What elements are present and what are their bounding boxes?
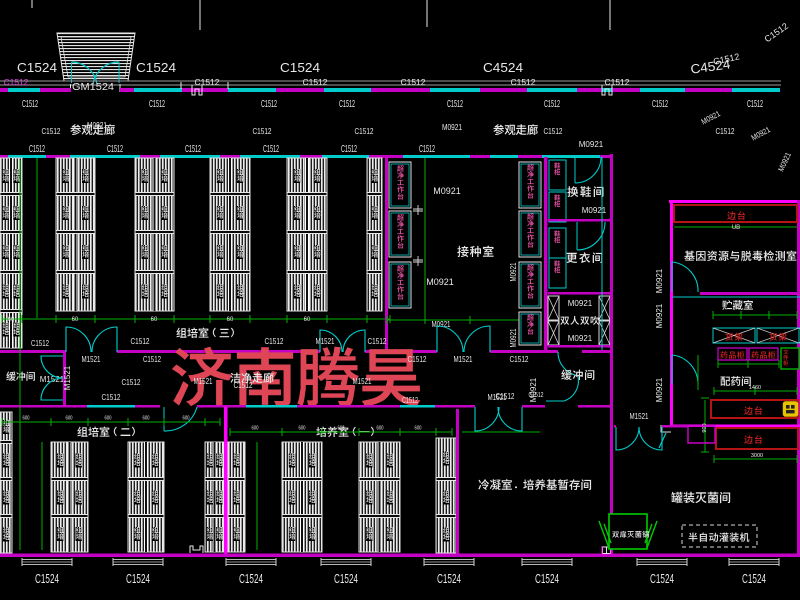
svg-text:600: 600 <box>183 416 190 422</box>
svg-text:M1521: M1521 <box>82 355 101 364</box>
svg-text:C1512: C1512 <box>261 98 277 110</box>
svg-text:C1512: C1512 <box>29 143 45 155</box>
svg-text:600: 600 <box>338 426 345 432</box>
svg-text:C1524: C1524 <box>334 571 358 586</box>
svg-text:C1512: C1512 <box>544 98 560 110</box>
svg-text:C4524: C4524 <box>483 60 523 75</box>
svg-text:UB: UB <box>732 225 740 231</box>
svg-text:600: 600 <box>105 416 112 422</box>
svg-text:C1512: C1512 <box>652 98 668 110</box>
svg-text:C1512: C1512 <box>122 378 141 387</box>
svg-text:600: 600 <box>143 416 150 422</box>
svg-text:C1524: C1524 <box>17 60 57 75</box>
svg-text:60: 60 <box>8 317 15 323</box>
svg-text:M0921: M0921 <box>655 303 664 328</box>
svg-text:M0921: M0921 <box>655 268 664 293</box>
svg-text:M1521: M1521 <box>63 365 72 390</box>
svg-text:M1521: M1521 <box>353 377 372 386</box>
svg-text:M1521: M1521 <box>316 337 335 346</box>
svg-text:C1512: C1512 <box>194 77 219 87</box>
svg-text:C1512: C1512 <box>42 126 61 136</box>
svg-text:C1512: C1512 <box>149 98 165 110</box>
svg-text:M0921: M0921 <box>655 377 664 402</box>
svg-text:C1512: C1512 <box>604 77 629 87</box>
svg-text:M0921: M0921 <box>509 328 518 347</box>
svg-text:C1512: C1512 <box>102 393 121 402</box>
svg-text:C1512: C1512 <box>355 126 374 136</box>
svg-text:C1512: C1512 <box>302 77 327 87</box>
svg-text:C1512: C1512 <box>544 126 563 136</box>
svg-text:C1512: C1512 <box>339 98 355 110</box>
svg-text:C1512: C1512 <box>265 337 284 346</box>
svg-text:900: 900 <box>702 423 708 432</box>
svg-text:C1512: C1512 <box>747 98 763 110</box>
svg-text:C1524: C1524 <box>35 571 59 586</box>
svg-text:M0921: M0921 <box>509 262 518 281</box>
svg-text:600: 600 <box>299 426 306 432</box>
svg-text:C1512: C1512 <box>3 77 28 87</box>
svg-text:600: 600 <box>377 426 384 432</box>
svg-text:M1521: M1521 <box>454 355 473 364</box>
svg-text:C1512: C1512 <box>253 126 272 136</box>
svg-text:C1512: C1512 <box>263 143 279 155</box>
svg-text:C1512: C1512 <box>510 355 529 364</box>
svg-text:60: 60 <box>227 317 234 323</box>
svg-text:C1512: C1512 <box>22 98 38 110</box>
svg-text:C1512: C1512 <box>143 355 161 364</box>
svg-text:C1524: C1524 <box>535 571 559 586</box>
svg-text:C1512: C1512 <box>529 390 544 399</box>
svg-text:C1524: C1524 <box>742 571 766 586</box>
svg-text:C1524: C1524 <box>650 571 674 586</box>
svg-text:M1521: M1521 <box>40 375 65 384</box>
svg-text:M0921: M0921 <box>442 122 462 132</box>
svg-text:C1512: C1512 <box>716 126 735 136</box>
svg-text:C1512: C1512 <box>400 77 425 87</box>
svg-text:60: 60 <box>304 317 311 323</box>
svg-text:C1524: C1524 <box>280 60 320 75</box>
svg-text:60: 60 <box>151 317 158 323</box>
svg-text:M0921: M0921 <box>568 334 593 343</box>
svg-text:C1512: C1512 <box>510 77 535 87</box>
svg-text:C1512: C1512 <box>447 98 463 110</box>
svg-text:C1512: C1512 <box>402 396 418 405</box>
svg-text:C1512: C1512 <box>234 381 253 390</box>
svg-text:C1512: C1512 <box>31 339 49 348</box>
svg-text:C1512: C1512 <box>341 143 357 155</box>
svg-text:M0921: M0921 <box>87 121 107 130</box>
svg-text:600: 600 <box>252 426 259 432</box>
svg-text:C1524: C1524 <box>437 571 461 586</box>
svg-text:600: 600 <box>23 416 30 422</box>
svg-text:C1512: C1512 <box>131 337 150 346</box>
svg-text:60: 60 <box>72 317 79 323</box>
svg-text:C1512: C1512 <box>185 143 201 155</box>
svg-text:C1512: C1512 <box>107 143 123 155</box>
svg-text:M0921: M0921 <box>433 186 461 196</box>
svg-text:3000: 3000 <box>751 453 763 459</box>
svg-text:M1521: M1521 <box>194 377 213 386</box>
svg-text:C1524: C1524 <box>136 60 176 75</box>
svg-text:C1512: C1512 <box>368 337 387 346</box>
svg-text:1460: 1460 <box>749 385 761 391</box>
svg-text:M1521: M1521 <box>488 393 507 402</box>
svg-text:600: 600 <box>415 426 422 432</box>
svg-text:M0921: M0921 <box>568 299 593 308</box>
svg-text:C1512: C1512 <box>408 355 427 364</box>
svg-text:C1524: C1524 <box>126 571 150 586</box>
svg-text:C1524: C1524 <box>239 571 263 586</box>
svg-text:M0921: M0921 <box>432 320 451 329</box>
svg-text:M1521: M1521 <box>630 412 649 421</box>
svg-text:600: 600 <box>66 416 73 422</box>
svg-text:GM1524: GM1524 <box>72 81 114 93</box>
svg-text:M0921: M0921 <box>426 277 454 287</box>
svg-text:M0921: M0921 <box>579 140 604 149</box>
svg-text:M0921: M0921 <box>582 206 607 215</box>
svg-text:C1512: C1512 <box>419 143 435 155</box>
